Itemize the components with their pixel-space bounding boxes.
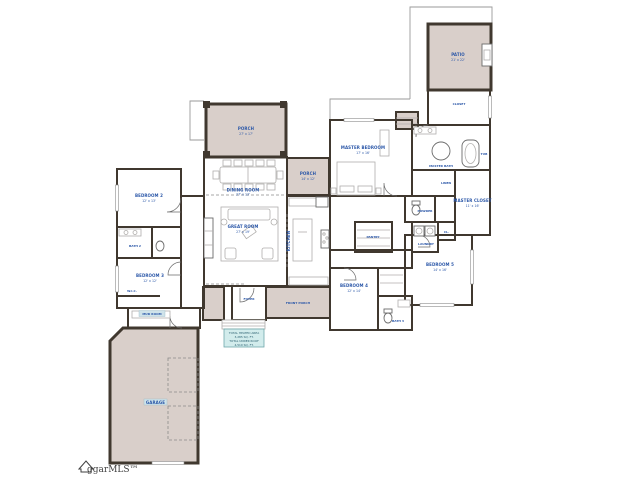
mls-logo-text: ggarMLS™ xyxy=(87,465,139,475)
dresser xyxy=(380,130,389,156)
bath3-vanity xyxy=(398,300,410,307)
washer-icon xyxy=(414,226,424,236)
label-kitchen: KITCHEN xyxy=(286,231,291,251)
dims-bedroom3: 12' x 12' xyxy=(143,279,157,283)
label-bedroom5: BEDROOM 5 xyxy=(426,262,454,267)
label-powder: POWDER xyxy=(418,209,434,213)
label-patio: PATIO xyxy=(451,52,465,57)
label-garage: GARAGE xyxy=(146,400,165,405)
dims-patio: 21' x 22' xyxy=(451,58,465,62)
garage-entry-door-arc xyxy=(170,316,182,328)
bed-pillow xyxy=(358,186,372,192)
armchair xyxy=(225,248,236,259)
dims-master-bedroom: 17' x 16' xyxy=(356,151,370,155)
room-closet-tr xyxy=(428,90,490,125)
label-master-bedroom: MASTER BEDROOM xyxy=(341,145,385,150)
floor-plan-image: PORCH 27' x 17' PORCH 14' x 12' PATIO 21… xyxy=(0,0,640,480)
dining-chair xyxy=(267,184,275,190)
room-patio xyxy=(428,24,491,90)
label-rear-porch: PORCH xyxy=(238,126,254,131)
room-bedroom4 xyxy=(330,268,378,330)
room-bedroom2 xyxy=(117,169,181,227)
window xyxy=(116,185,119,211)
label-foyer: FOYER xyxy=(243,297,255,301)
label-closet-tr: CLOSET xyxy=(453,102,467,106)
dims-master-closet: 11' x 16' xyxy=(466,204,480,208)
room-hall-left xyxy=(181,196,204,308)
side-table xyxy=(221,219,227,225)
nightstand xyxy=(376,188,381,194)
kitchen-island xyxy=(293,219,312,261)
nightstand xyxy=(331,188,336,194)
garden-tub-icon xyxy=(462,140,479,167)
dining-chair xyxy=(267,160,275,166)
dining-chair xyxy=(256,160,264,166)
refrigerator-icon xyxy=(316,197,328,207)
master-door-arc xyxy=(384,183,397,196)
dims-side-porch: 14' x 12' xyxy=(301,177,315,181)
label-great-room: GREAT ROOM xyxy=(228,224,259,229)
dining-chair xyxy=(245,160,253,166)
label-bath3: BATH 3 xyxy=(392,319,404,323)
label-mud: MUD ROOM xyxy=(142,312,161,316)
window xyxy=(420,304,454,307)
window xyxy=(344,119,374,122)
side-table xyxy=(271,219,277,225)
outdoor-fireplace-firebox xyxy=(484,50,490,60)
room-bedroom4-closet xyxy=(378,268,405,296)
toilet-tank xyxy=(412,201,420,205)
bedroom3-door-arc xyxy=(168,262,181,275)
label-bath2: BATH 2 xyxy=(129,244,141,248)
window xyxy=(471,250,474,284)
round-soaking-tub-icon xyxy=(432,142,450,160)
floor-plan-drawing: PORCH 27' x 17' PORCH 14' x 12' PATIO 21… xyxy=(0,0,640,480)
roof-outline-porch-notch xyxy=(190,101,204,140)
room-garage xyxy=(110,328,198,463)
sofa xyxy=(228,209,270,220)
porch-post xyxy=(280,101,287,108)
dims-bedroom2: 12' x 13' xyxy=(142,199,156,203)
window xyxy=(116,266,119,292)
dims-great-room: 27' x 19' xyxy=(236,230,250,234)
bath-vanity xyxy=(414,127,436,134)
dining-chair xyxy=(234,160,242,166)
toilet-icon xyxy=(384,313,392,323)
garage-window xyxy=(152,462,184,465)
dims-bedroom4: 12' x 14' xyxy=(347,289,361,293)
dining-chair xyxy=(213,171,219,179)
kitchen-counter-bottom xyxy=(289,277,328,285)
bedroom4-door-arc xyxy=(344,268,356,280)
window xyxy=(489,96,492,118)
label-wic: W.I.C. xyxy=(127,289,137,293)
label-master-closet: MASTER CLOSET xyxy=(453,198,491,203)
bedroom2-door-arc xyxy=(167,198,181,212)
bath2-vanity xyxy=(119,229,141,236)
room-foyer xyxy=(232,286,266,320)
porch-post xyxy=(203,101,210,108)
bed-pillow xyxy=(340,186,354,192)
dims-dining: 27' x 13' xyxy=(236,193,250,197)
label-bedroom3: BEDROOM 3 xyxy=(136,273,164,278)
room-front-porch-left xyxy=(203,287,224,320)
label-side-porch: PORCH xyxy=(300,171,316,176)
label-bedroom2: BEDROOM 2 xyxy=(135,193,163,198)
dining-chair xyxy=(277,171,283,179)
note-line-4: 4,510 SQ. FT. xyxy=(234,343,253,347)
label-pantry: PANTRY xyxy=(366,235,380,239)
dims-rear-porch: 27' x 17' xyxy=(239,132,253,136)
label-front-porch: FRONT PORCH xyxy=(286,301,311,305)
toilet-tank xyxy=(384,309,392,313)
toilet-icon xyxy=(156,241,164,251)
media-builtin xyxy=(204,218,213,258)
label-bedroom4: BEDROOM 4 xyxy=(340,283,368,288)
label-master-bath: MASTER BATH xyxy=(429,164,453,168)
front-steps xyxy=(222,320,265,329)
dims-bedroom5: 14' x 16' xyxy=(433,268,447,272)
label-linen: LINEN xyxy=(441,181,452,185)
label-cl: CL. xyxy=(444,230,449,234)
armchair xyxy=(262,248,273,259)
label-tub: TUB xyxy=(481,152,488,156)
dining-chair xyxy=(223,160,231,166)
dryer-icon xyxy=(425,226,435,236)
label-laundry: LAUNDRY xyxy=(418,242,435,246)
room-bedroom3 xyxy=(117,258,181,308)
